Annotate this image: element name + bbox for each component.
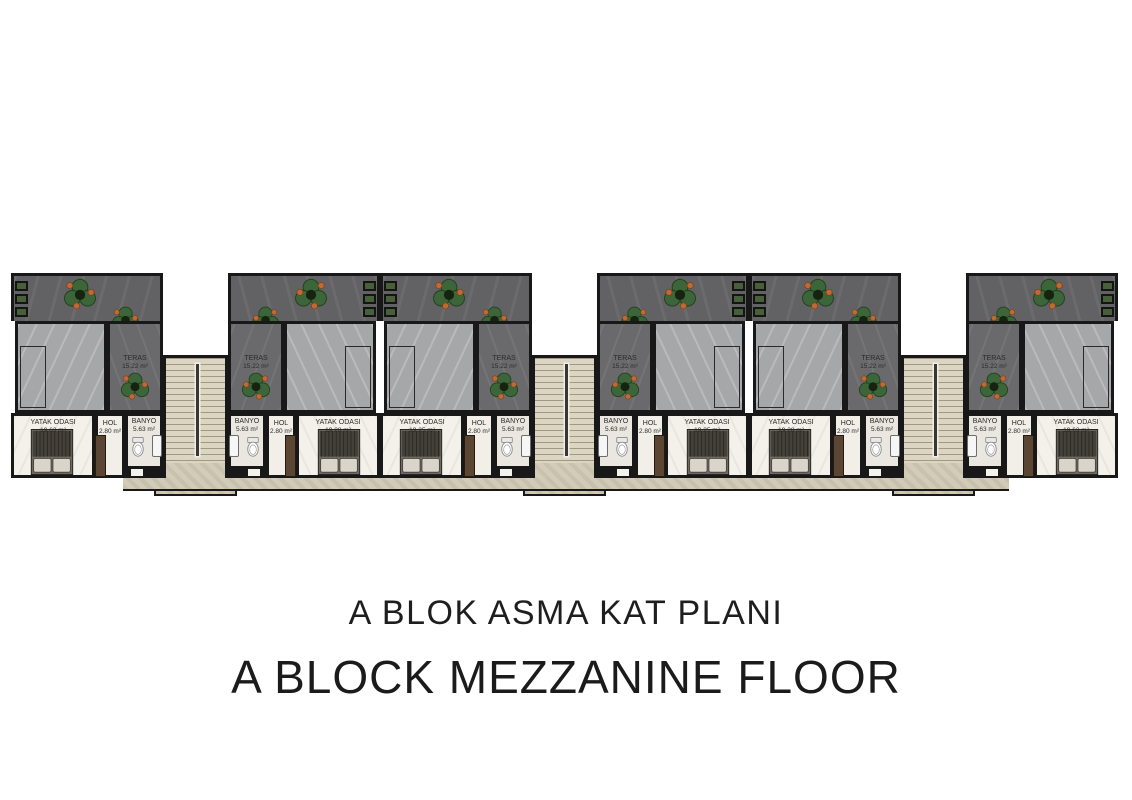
- sink-icon: [890, 435, 900, 457]
- teras-label: TERAS15.22 m²: [966, 355, 1022, 371]
- stair-hatch: [389, 346, 415, 408]
- unit-plan-6: TERAS15.22 m² YATAK ODASI19.63 m² HOL2.8…: [966, 273, 1118, 478]
- sink-icon: [229, 435, 239, 457]
- rear-walkway: [123, 478, 1009, 491]
- unit-plan-2: TERAS15.22 m² YATAK ODASI19.28 m² HOL2.8…: [228, 273, 380, 478]
- unit-plan-1: TERAS15.22 m² YATAK ODASI19.63 m² HOL2.8…: [11, 273, 163, 478]
- stair-treads: [901, 355, 966, 465]
- bathroom-label: BANYO5.63 m²: [595, 418, 637, 434]
- plant-icon: [1032, 277, 1066, 311]
- bed-icon: [29, 429, 75, 475]
- wardrobe: [1023, 435, 1034, 477]
- bed-icon: [767, 429, 813, 475]
- planter-boxes-icon: [362, 281, 376, 320]
- void-room: [384, 321, 476, 413]
- teras-label: TERAS15.22 m²: [476, 355, 532, 371]
- teras-label: TERAS15.22 m²: [845, 355, 901, 371]
- bedroom-label: YATAK ODASI19.63 m²: [1034, 419, 1118, 435]
- plant-icon: [294, 277, 328, 311]
- bathroom-label: BANYO5.63 m²: [226, 418, 268, 434]
- plant-icon: [610, 371, 640, 401]
- bedroom-label: YATAK ODASI19.25 m²: [380, 419, 464, 435]
- plant-icon: [489, 371, 519, 401]
- planter-boxes-icon: [384, 281, 398, 320]
- bathroom-label: BANYO5.63 m²: [123, 418, 165, 434]
- wardrobe: [654, 435, 665, 477]
- plant-icon: [979, 371, 1009, 401]
- teras-label: TERAS15.22 m²: [597, 355, 653, 371]
- planter-boxes-icon: [753, 281, 767, 320]
- stair-divider: [565, 364, 568, 456]
- stair-treads: [532, 355, 597, 465]
- plant-icon: [63, 277, 97, 311]
- stairwell: [901, 273, 966, 501]
- toilet-icon: [500, 437, 514, 457]
- stair-divider: [196, 364, 199, 456]
- wall-segment: [966, 467, 1004, 478]
- toilet-icon: [869, 437, 883, 457]
- teras-label: TERAS15.22 m²: [107, 355, 163, 371]
- wardrobe: [95, 435, 106, 477]
- toilet-icon: [984, 437, 998, 457]
- bedroom-label: YATAK ODASI19.25 m²: [665, 419, 749, 435]
- planter-boxes-icon: [1100, 281, 1114, 320]
- sink-icon: [521, 435, 531, 457]
- void-room: [284, 321, 376, 413]
- toilet-icon: [246, 437, 260, 457]
- toilet-icon: [615, 437, 629, 457]
- plant-icon: [663, 277, 697, 311]
- bathroom-label: BANYO5.63 m²: [861, 418, 903, 434]
- stairwell: [532, 273, 597, 501]
- stair-hatch: [714, 346, 740, 408]
- wall-segment: [125, 467, 163, 478]
- bed-icon: [398, 429, 444, 475]
- wardrobe: [833, 435, 844, 477]
- wardrobe: [285, 435, 296, 477]
- void-room: [15, 321, 107, 413]
- wardrobe: [464, 435, 475, 477]
- stair-treads: [163, 355, 228, 465]
- bedroom-label: YATAK ODASI19.63 m²: [11, 419, 95, 435]
- stair-hatch: [20, 346, 46, 408]
- planter-boxes-icon: [15, 281, 29, 320]
- plant-icon: [241, 371, 271, 401]
- unit-plan-4: TERAS15.22 m² YATAK ODASI19.25 m² HOL2.8…: [597, 273, 749, 478]
- planter-boxes-icon: [731, 281, 745, 320]
- stair-hatch: [345, 346, 371, 408]
- floor-plan: TERAS15.22 m² YATAK ODASI19.63 m² HOL2.8…: [11, 273, 1121, 503]
- wall-segment: [863, 467, 901, 478]
- stair-hatch: [758, 346, 784, 408]
- sink-icon: [152, 435, 162, 457]
- plant-icon: [858, 371, 888, 401]
- sink-icon: [598, 435, 608, 457]
- void-room: [1022, 321, 1114, 413]
- toilet-icon: [131, 437, 145, 457]
- plant-icon: [120, 371, 150, 401]
- stair-divider: [934, 364, 937, 456]
- bedroom-label: YATAK ODASI19.28 m²: [296, 419, 380, 435]
- unit-plan-5: TERAS15.22 m² YATAK ODASI19.28 m² HOL2.8…: [749, 273, 901, 478]
- wall-segment: [494, 467, 532, 478]
- teras-label: TERAS15.22 m²: [228, 355, 284, 371]
- stair-hatch: [1083, 346, 1109, 408]
- plant-icon: [801, 277, 835, 311]
- void-room: [653, 321, 745, 413]
- title-turkish: A BLOK ASMA KAT PLANI: [0, 594, 1132, 633]
- bedroom-label: YATAK ODASI19.28 m²: [749, 419, 833, 435]
- bed-icon: [316, 429, 362, 475]
- wall-segment: [597, 467, 635, 478]
- sink-icon: [967, 435, 977, 457]
- wall-segment: [228, 467, 266, 478]
- bathroom-label: BANYO5.63 m²: [492, 418, 534, 434]
- bed-icon: [685, 429, 731, 475]
- title-english: A BLOCK MEZZANINE FLOOR: [0, 650, 1132, 704]
- stairwell: [163, 273, 228, 501]
- bed-icon: [1054, 429, 1100, 475]
- plant-icon: [432, 277, 466, 311]
- void-room: [753, 321, 845, 413]
- unit-plan-3: TERAS15.22 m² YATAK ODASI19.25 m² HOL2.8…: [380, 273, 532, 478]
- bathroom-label: BANYO5.63 m²: [964, 418, 1006, 434]
